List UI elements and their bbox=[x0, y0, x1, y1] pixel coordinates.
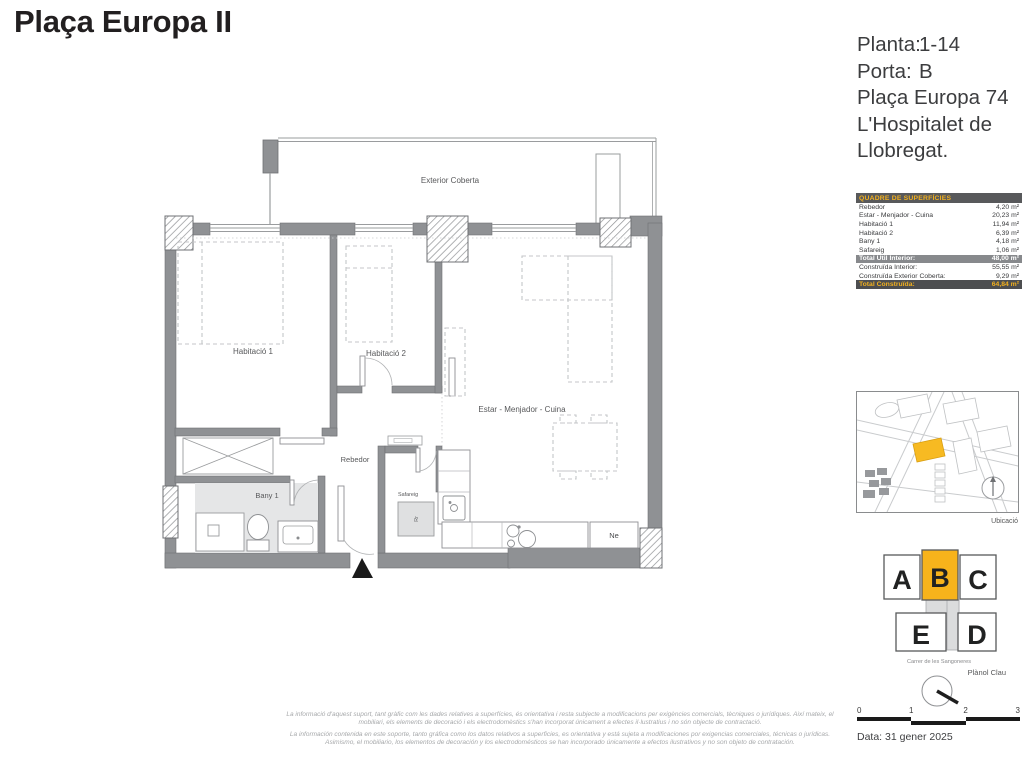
row-value: 4,18 m² bbox=[996, 238, 1019, 245]
row-value: 6,39 m² bbox=[996, 230, 1019, 237]
disclaimer-spanish: La información contenida en este soporte… bbox=[280, 731, 840, 748]
areas-table-header: QUADRE DE SUPERFÍCIES bbox=[856, 193, 1022, 203]
row-value: 55,55 m² bbox=[992, 264, 1019, 271]
dining-chair bbox=[591, 471, 607, 479]
disclaimer: La informació d'aquest suport, tant gràf… bbox=[280, 711, 840, 751]
door-leaf-safareig bbox=[416, 448, 420, 472]
door-leaf-hab2 bbox=[360, 356, 365, 386]
table-row: Habitació 111,94 m² bbox=[856, 220, 1022, 229]
row-label: Construïda Interior: bbox=[859, 264, 917, 271]
table-row-total-construida: Total Construïda:64,84 m² bbox=[856, 280, 1022, 289]
label-habitacio-2: Habitació 2 bbox=[366, 349, 407, 358]
location-map bbox=[856, 391, 1019, 513]
row-label: Total Construïda: bbox=[859, 281, 915, 288]
kitchen-sink bbox=[443, 496, 465, 520]
table-row: Habitació 26,39 m² bbox=[856, 229, 1022, 238]
map-caption: Ubicació bbox=[856, 518, 1018, 525]
address-line-1: Plaça Europa 74 bbox=[857, 85, 1009, 112]
row-value: 20,23 m² bbox=[992, 212, 1019, 219]
bed-hab2 bbox=[346, 246, 392, 342]
scale-numbers: 0 1 2 3 bbox=[857, 706, 1020, 717]
shower-tray bbox=[196, 513, 244, 551]
kitchen bbox=[438, 450, 638, 548]
label-exterior-coberta: Exterior Coberta bbox=[421, 176, 480, 185]
unit-letter-b: B bbox=[930, 563, 950, 593]
row-value: 4,20 m² bbox=[996, 204, 1019, 211]
disclaimer-catalan: La informació d'aquest suport, tant gràf… bbox=[280, 711, 840, 728]
label-safareig: Safareig bbox=[398, 492, 418, 498]
address-line-2: L'Hospitalet de bbox=[857, 112, 1009, 139]
row-label: Habitació 1 bbox=[859, 221, 893, 228]
unit-letter-e: E bbox=[912, 620, 930, 650]
vanity-faucet bbox=[297, 537, 300, 540]
scale-tick-1: 1 bbox=[909, 706, 913, 715]
row-label: Estar - Menjador - Cuina bbox=[859, 212, 933, 219]
toilet-bowl bbox=[248, 515, 269, 540]
shower-drain bbox=[208, 525, 219, 536]
map-highlighted-building bbox=[913, 438, 945, 462]
table-row: Construïda Exterior Coberta:9,29 m² bbox=[856, 272, 1022, 281]
areas-table: QUADRE DE SUPERFÍCIES Rebedor4,20 m² Est… bbox=[856, 193, 1022, 289]
row-value: 48,00 m² bbox=[992, 255, 1019, 262]
label-habitacio-1: Habitació 1 bbox=[233, 347, 274, 356]
door-leaf-entrance bbox=[338, 486, 344, 541]
door-leaf-bany bbox=[290, 480, 294, 505]
label-nevera: Ne bbox=[609, 531, 619, 540]
wardrobe-hab1 bbox=[183, 438, 273, 474]
row-label: Rebedor bbox=[859, 204, 885, 211]
row-label: Safareig bbox=[859, 247, 884, 254]
door-leaf-hab1 bbox=[280, 438, 324, 444]
scale-tick-3: 3 bbox=[1016, 706, 1020, 715]
planta-value: 1-14 bbox=[919, 32, 960, 59]
dining-chair bbox=[591, 415, 607, 423]
table-row: Safareig1,06 m² bbox=[856, 246, 1022, 255]
date-label: Data: 31 gener 2025 bbox=[857, 731, 953, 743]
row-label: Total Útil Interior: bbox=[859, 255, 915, 262]
row-value: 9,29 m² bbox=[996, 273, 1019, 280]
street-caption: Carrer de les Sangoneres bbox=[856, 659, 1022, 665]
label-bany-1: Bany 1 bbox=[255, 491, 278, 500]
porta-value: B bbox=[919, 59, 933, 86]
unit-letter-a: A bbox=[892, 565, 912, 595]
door-leaf-living bbox=[449, 358, 455, 396]
floorplan-sheet: Plaça Europa II Planta: 1-14 Porta: B Pl… bbox=[0, 0, 1024, 769]
entrance-triangle bbox=[352, 558, 373, 578]
planta-row: Planta: 1-14 bbox=[857, 32, 1009, 59]
terrace-planter bbox=[596, 154, 620, 224]
sofa bbox=[522, 256, 612, 300]
kitchen-counter bbox=[442, 522, 588, 548]
dining-chair bbox=[560, 415, 576, 423]
unit-letter-c: C bbox=[968, 565, 988, 595]
dining-chair bbox=[560, 471, 576, 479]
page-title: Plaça Europa II bbox=[14, 4, 232, 40]
row-value: 11,94 m² bbox=[993, 221, 1019, 228]
sofa-chaise bbox=[568, 256, 612, 382]
unit-letter-d: D bbox=[967, 620, 987, 650]
unit-info: Planta: 1-14 Porta: B Plaça Europa 74 L'… bbox=[857, 32, 1009, 165]
row-label: Construïda Exterior Coberta: bbox=[859, 273, 946, 280]
label-rentadora: Rr bbox=[414, 516, 420, 522]
table-row: Rebedor4,20 m² bbox=[856, 203, 1022, 212]
key-plan: A B C E D bbox=[881, 547, 1006, 659]
windows bbox=[210, 225, 576, 232]
row-label: Habitació 2 bbox=[859, 230, 893, 237]
floor-plan: Exterior Coberta Habitació 1 Habitació 2… bbox=[150, 128, 680, 583]
row-label: Bany 1 bbox=[859, 238, 880, 245]
vanity-basin bbox=[283, 526, 313, 544]
bed-hab1 bbox=[178, 242, 283, 344]
table-row: Construïda Interior:55,55 m² bbox=[856, 263, 1022, 272]
planta-label: Planta: bbox=[857, 32, 919, 59]
label-rebedor: Rebedor bbox=[341, 455, 370, 464]
row-value: 64,84 m² bbox=[992, 281, 1019, 288]
scale-bar: 0 1 2 3 bbox=[857, 706, 1020, 725]
row-value: 1,06 m² bbox=[996, 247, 1019, 254]
areas-table-title: QUADRE DE SUPERFÍCIES bbox=[859, 195, 951, 202]
scale-tick-2: 2 bbox=[963, 706, 967, 715]
label-estar-menjador-cuina: Estar - Menjador - Cuina bbox=[478, 405, 566, 414]
scale-tick-0: 0 bbox=[857, 706, 861, 715]
table-row-total-util: Total Útil Interior:48,00 m² bbox=[856, 255, 1022, 264]
porta-row: Porta: B bbox=[857, 59, 1009, 86]
terrace-divider-wall bbox=[263, 140, 278, 173]
address-line-3: Llobregat. bbox=[857, 138, 1009, 165]
table-row: Estar - Menjador - Cuina20,23 m² bbox=[856, 212, 1022, 221]
toilet-tank bbox=[247, 540, 269, 551]
scale-bar-segments bbox=[857, 717, 1020, 725]
dining-table bbox=[553, 423, 617, 471]
porta-label: Porta: bbox=[857, 59, 919, 86]
table-row: Bany 14,18 m² bbox=[856, 237, 1022, 246]
